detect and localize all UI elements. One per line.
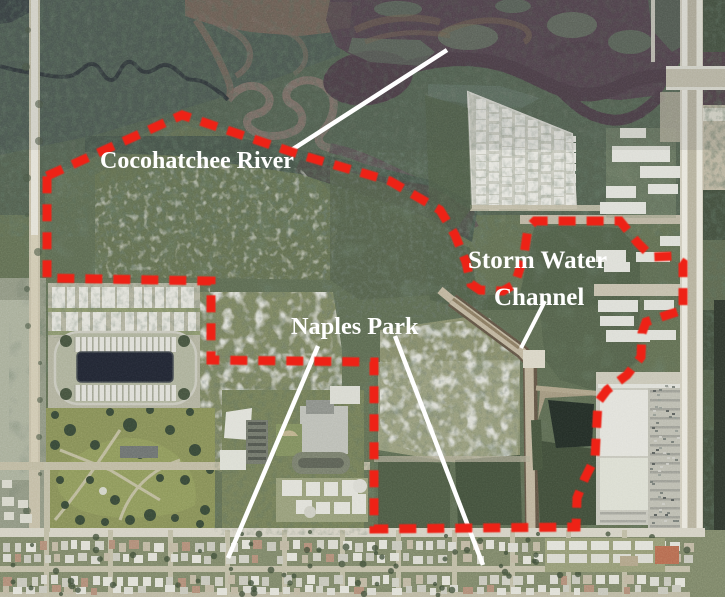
svg-text:Cocohatchee River: Cocohatchee River: [100, 148, 294, 174]
svg-text:Storm Water: Storm Water: [468, 247, 607, 274]
svg-text:Channel: Channel: [494, 284, 584, 311]
svg-text:Naples Park: Naples Park: [291, 313, 419, 340]
